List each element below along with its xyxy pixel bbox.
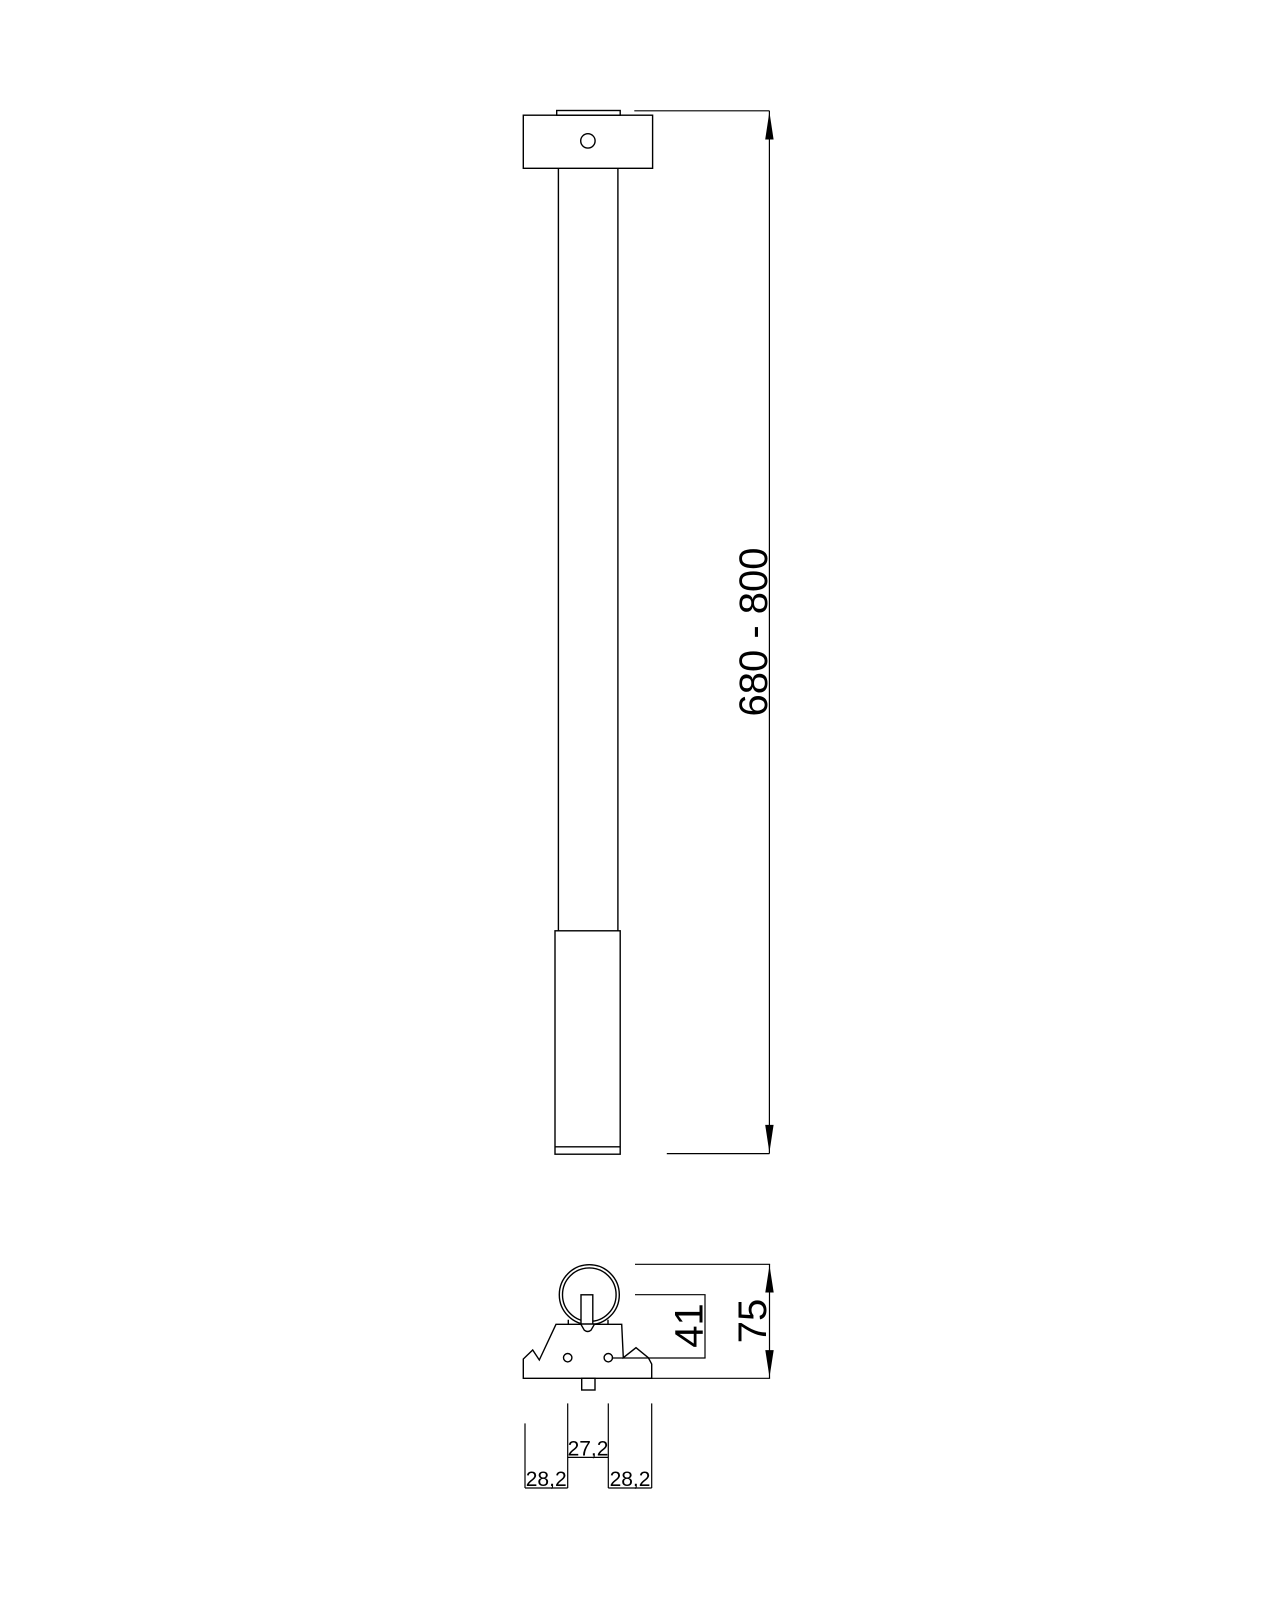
center-to-holes-dimension-label: 41 bbox=[668, 1303, 712, 1348]
height-dimension-arrow-down bbox=[765, 1125, 773, 1153]
bracket-hole-right bbox=[604, 1354, 612, 1362]
bracket-hole-left bbox=[564, 1354, 572, 1362]
lamp-head-body bbox=[555, 931, 620, 1154]
height-dimension-label: 680 - 800 bbox=[732, 547, 776, 716]
technical-drawing-canvas: 680 - 800 41 bbox=[0, 0, 1280, 1600]
left-offset-dimension-label: 28,2 bbox=[526, 1468, 567, 1491]
center-to-holes-dimension: 41 bbox=[612, 1295, 712, 1358]
overall-size-dimension-label: 75 bbox=[731, 1299, 775, 1344]
mounting-bracket-outline bbox=[523, 1324, 651, 1378]
dim75-arrow-up bbox=[765, 1265, 773, 1292]
height-dimension-arrow-up bbox=[765, 112, 773, 140]
tube-key-slot bbox=[581, 1295, 593, 1325]
bottom-view: 41 75 27,2 28,2 bbox=[523, 1264, 775, 1491]
drawing-page: 680 - 800 41 bbox=[0, 0, 1280, 1600]
front-view: 680 - 800 bbox=[523, 111, 776, 1155]
right-offset-dimension-label: 28,2 bbox=[610, 1468, 651, 1491]
dim75-arrow-down bbox=[765, 1350, 773, 1377]
height-dimension: 680 - 800 bbox=[634, 111, 776, 1154]
width-dimensions: 27,2 28,2 28,2 bbox=[525, 1403, 652, 1491]
hole-spacing-dimension-label: 27,2 bbox=[568, 1438, 609, 1461]
stem-outline bbox=[558, 168, 618, 931]
canopy-screw-hole bbox=[581, 134, 595, 148]
canopy-plate bbox=[523, 115, 652, 168]
canopy-lip bbox=[557, 111, 621, 116]
bracket-bottom-tab bbox=[582, 1378, 595, 1390]
